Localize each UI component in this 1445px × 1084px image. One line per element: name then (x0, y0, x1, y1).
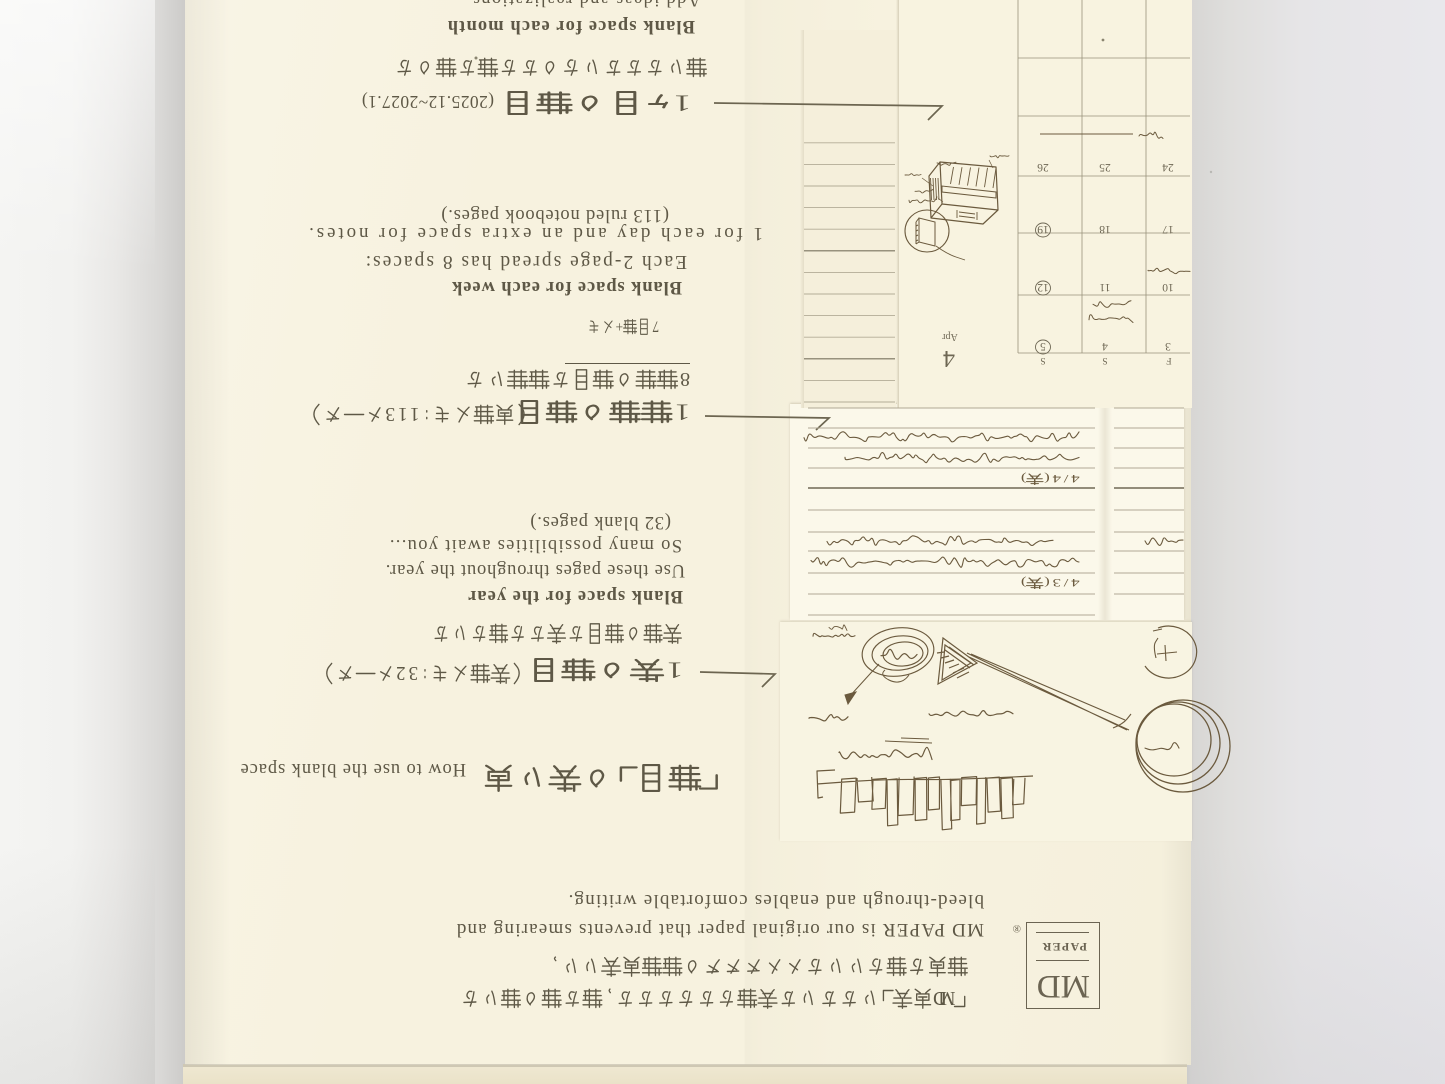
svg-text:8: 8 (680, 368, 690, 390)
svg-text:S: S (1102, 355, 1107, 365)
svg-text:24: 24 (1162, 161, 1174, 173)
svg-text:113: 113 (385, 403, 419, 425)
svg-text:5: 5 (1040, 340, 1046, 352)
svg-text:F: F (1166, 355, 1171, 365)
svg-text:1: 1 (667, 657, 683, 682)
svg-text:1: 1 (675, 399, 690, 425)
svg-text:1: 1 (674, 90, 691, 115)
svg-text:3: 3 (1165, 340, 1171, 352)
svg-text:10: 10 (1162, 281, 1174, 293)
svg-text:+: + (615, 317, 623, 334)
svg-text:19: 19 (1037, 223, 1049, 235)
svg-text:S: S (1040, 355, 1045, 365)
svg-text:25: 25 (1099, 161, 1111, 173)
svg-text:7: 7 (652, 317, 659, 334)
svg-text:17: 17 (1162, 223, 1174, 235)
svg-text:MD: MD (933, 987, 955, 1008)
svg-text:12: 12 (1037, 281, 1049, 293)
svg-text:4: 4 (1102, 340, 1108, 352)
svg-text:11: 11 (1099, 281, 1110, 293)
svg-text:32: 32 (396, 662, 418, 683)
svg-text:18: 18 (1099, 223, 1111, 235)
svg-text:4: 4 (943, 345, 955, 371)
svg-text:): ) (1021, 472, 1027, 485)
svg-text:): ) (1021, 576, 1027, 589)
svg-text:Apr: Apr (942, 331, 958, 342)
svg-text:26: 26 (1037, 161, 1049, 173)
svg-text:4/3(: 4/3( (1044, 576, 1080, 589)
svg-text:4/4(: 4/4( (1044, 472, 1080, 485)
